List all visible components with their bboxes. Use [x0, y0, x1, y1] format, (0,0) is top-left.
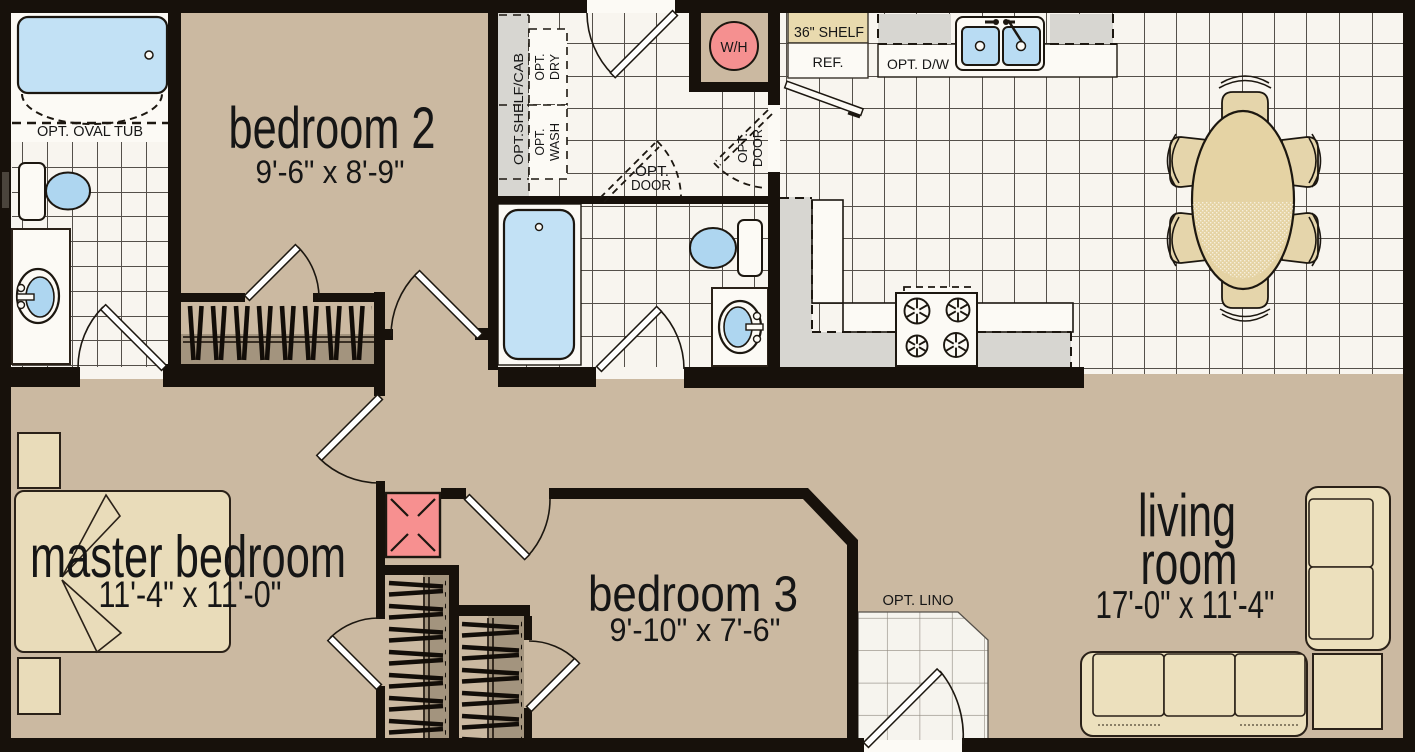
svg-text:OPT.SHELF/CAB: OPT.SHELF/CAB — [512, 53, 526, 165]
svg-text:W/H: W/H — [721, 40, 748, 56]
svg-text:DRY: DRY — [548, 53, 562, 80]
svg-text:OPT. LINO: OPT. LINO — [883, 592, 954, 609]
svg-text:11'-4" x 11'-0": 11'-4" x 11'-0" — [99, 574, 282, 615]
svg-text:OPT.: OPT. — [533, 54, 547, 81]
svg-text:DOOR: DOOR — [751, 129, 765, 167]
svg-text:OPT. D/W: OPT. D/W — [887, 56, 950, 72]
svg-text:OPT.: OPT. — [736, 133, 750, 163]
svg-text:OPT.: OPT. — [533, 129, 547, 156]
svg-text:WASH: WASH — [548, 123, 562, 161]
svg-text:9'-6" x 8'-9": 9'-6" x 8'-9" — [256, 154, 405, 190]
svg-text:DOOR: DOOR — [631, 177, 671, 194]
svg-text:17'-0" x 11'-4": 17'-0" x 11'-4" — [1096, 584, 1275, 627]
svg-text:REF.: REF. — [813, 55, 844, 70]
svg-text:bedroom 2: bedroom 2 — [229, 96, 436, 161]
svg-text:OPT. OVAL TUB: OPT. OVAL TUB — [37, 123, 143, 140]
svg-text:36" SHELF: 36" SHELF — [794, 25, 864, 41]
svg-text:9'-10" x 7'-6": 9'-10" x 7'-6" — [610, 612, 781, 648]
